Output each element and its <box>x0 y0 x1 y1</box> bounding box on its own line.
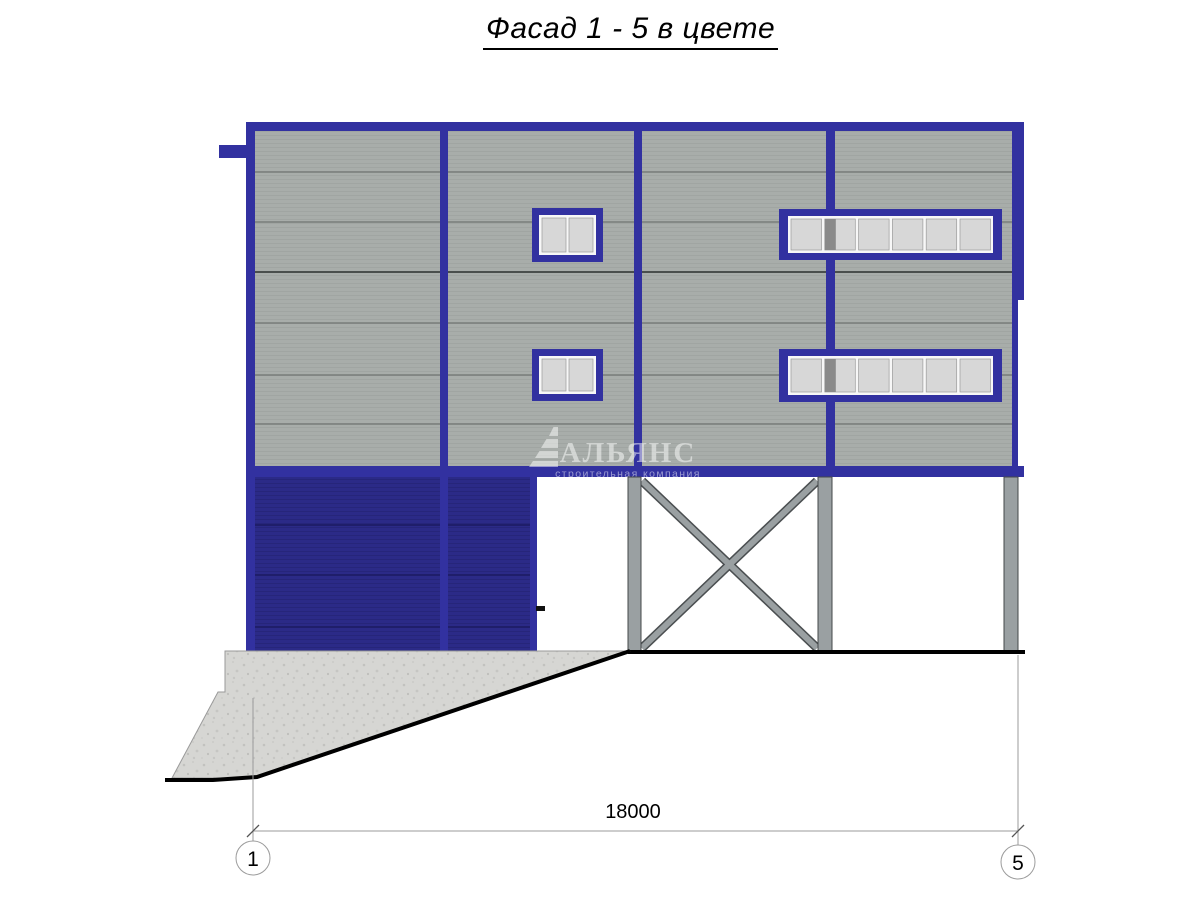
facade-drawing-sheet: Фасад 1 - 5 в цвете <box>0 0 1200 900</box>
left-corner-trim <box>246 122 255 651</box>
axis-bubble-5: 5 <box>1001 845 1035 879</box>
window-small-upper <box>532 208 603 262</box>
gate-handle-mark <box>536 606 545 611</box>
window-ribbon-lower <box>779 349 1002 402</box>
mullion-3 <box>826 130 835 477</box>
gutter-outlet <box>219 145 247 158</box>
right-corner-trim-upper <box>1012 122 1024 300</box>
window-pane <box>791 359 822 392</box>
dimension-value: 18000 <box>605 801 661 823</box>
window-pane <box>892 219 923 250</box>
axis-label-1: 1 <box>247 848 259 871</box>
concrete-ramp <box>172 651 630 778</box>
window-pane <box>542 359 566 391</box>
window-pane <box>542 218 566 252</box>
window-pane <box>926 359 957 392</box>
window-pane <box>892 359 923 392</box>
window-pane <box>569 359 593 391</box>
top-trim-band <box>246 122 1024 131</box>
axis-bubble-1: 1 <box>236 841 270 875</box>
facade-elevation-canvas: АЛЬЯНС строительная компания <box>0 0 1200 900</box>
window-pane <box>960 219 991 250</box>
window-ribbon-upper <box>779 209 1002 260</box>
window-pane <box>859 359 890 392</box>
mullion-2 <box>634 130 642 477</box>
window-pane <box>791 219 822 250</box>
open-sash-strip <box>825 359 836 392</box>
open-sash-strip <box>825 219 836 250</box>
steel-column-right <box>1004 477 1018 651</box>
x-bracing <box>642 481 817 648</box>
gate-mullion <box>440 477 448 651</box>
window-small-lower <box>532 349 603 401</box>
steel-column-middle <box>818 477 832 652</box>
sectional-gate <box>255 477 530 651</box>
window-pane <box>960 359 991 392</box>
window-pane <box>926 219 957 250</box>
window-pane <box>569 218 593 252</box>
steel-columns <box>628 477 1018 652</box>
facade-panel-field <box>255 130 1012 466</box>
right-corner-trim-lower <box>1012 300 1018 477</box>
axis-label-5: 5 <box>1012 852 1024 875</box>
watermark-brand-text: АЛЬЯНС <box>560 437 697 469</box>
window-pane <box>859 219 890 250</box>
gate-right-trim <box>530 477 537 651</box>
steel-column-left <box>628 477 641 652</box>
